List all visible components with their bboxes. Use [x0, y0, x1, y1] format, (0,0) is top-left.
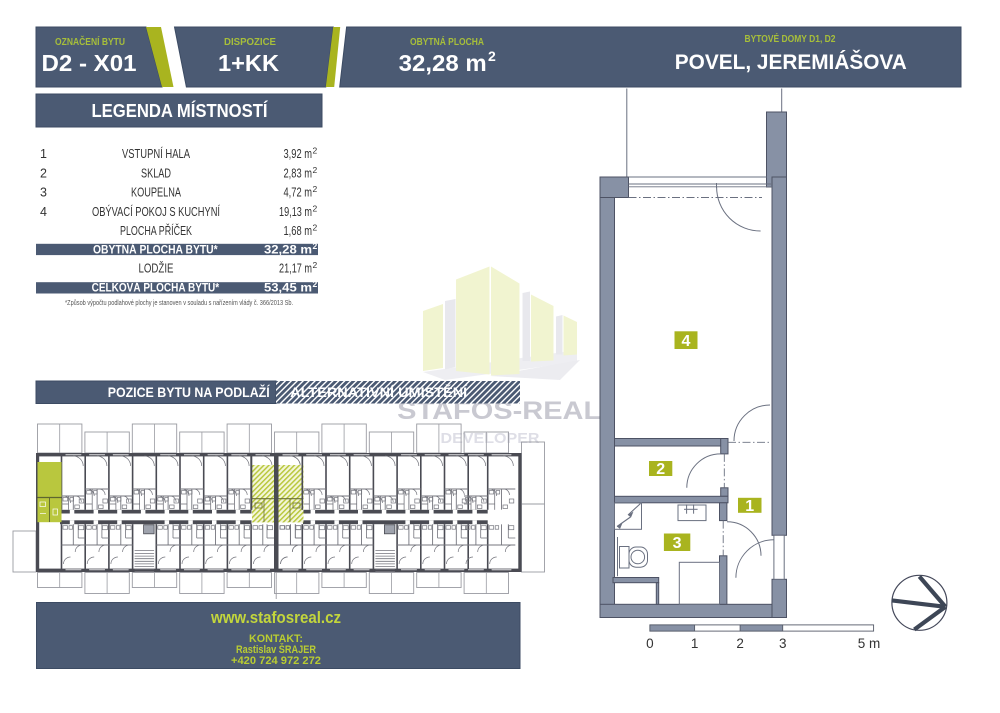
svg-text:*Způsob výpočtu podlahové ploc: *Způsob výpočtu podlahové plochy je stan… — [65, 298, 293, 307]
svg-text:+420 724 972 272: +420 724 972 272 — [231, 655, 321, 667]
svg-text:3: 3 — [779, 636, 787, 651]
svg-text:CELKOVÁ PLOCHA BYTU*: CELKOVÁ PLOCHA BYTU* — [92, 280, 220, 295]
svg-text:4: 4 — [682, 333, 691, 350]
svg-text:DEVELOPER: DEVELOPER — [441, 430, 540, 447]
svg-text:2: 2 — [488, 48, 496, 64]
svg-text:32,28 m: 32,28 m — [264, 242, 312, 256]
svg-text:OBYTNÁ PLOCHA: OBYTNÁ PLOCHA — [410, 35, 484, 48]
svg-text:3: 3 — [673, 535, 682, 552]
svg-text:4: 4 — [40, 205, 47, 219]
svg-text:1: 1 — [691, 636, 699, 651]
svg-text:1: 1 — [40, 147, 47, 161]
svg-text:POZICE BYTU NA PODLAŽÍ: POZICE BYTU NA PODLAŽÍ — [108, 383, 271, 400]
svg-text:ALTERNATIVNÍ UMÍSTĚNÍ: ALTERNATIVNÍ UMÍSTĚNÍ — [290, 383, 468, 400]
svg-text:3: 3 — [40, 186, 47, 200]
svg-text:2: 2 — [313, 146, 318, 156]
svg-text:2: 2 — [313, 223, 318, 233]
svg-text:19,13 m: 19,13 m — [279, 204, 312, 219]
svg-text:2: 2 — [313, 184, 318, 194]
svg-text:0: 0 — [646, 636, 654, 651]
svg-text:32,28 m: 32,28 m — [399, 50, 487, 76]
svg-text:5 m: 5 m — [858, 636, 881, 651]
svg-text:LODŽIE: LODŽIE — [139, 261, 174, 276]
svg-text:BYTOVÉ DOMY D1, D2: BYTOVÉ DOMY D1, D2 — [745, 32, 836, 45]
svg-text:1: 1 — [745, 498, 754, 515]
svg-text:www.stafosreal.cz: www.stafosreal.cz — [210, 609, 341, 627]
svg-text:1+KK: 1+KK — [218, 50, 279, 76]
svg-text:2,83 m: 2,83 m — [284, 165, 313, 180]
svg-text:OZNAČENÍ BYTU: OZNAČENÍ BYTU — [55, 35, 125, 48]
svg-text:POVEL, JEREMIÁŠOVA: POVEL, JEREMIÁŠOVA — [675, 50, 907, 74]
svg-text:1,68 m: 1,68 m — [284, 223, 313, 238]
svg-text:LEGENDA MÍSTNOSTÍ: LEGENDA MÍSTNOSTÍ — [92, 100, 269, 121]
svg-text:D2 - X01: D2 - X01 — [42, 50, 137, 76]
svg-text:4,72 m: 4,72 m — [284, 185, 313, 200]
svg-text:2: 2 — [313, 279, 318, 289]
svg-text:2: 2 — [656, 461, 665, 478]
svg-text:21,17 m: 21,17 m — [279, 261, 312, 276]
svg-text:2: 2 — [736, 636, 744, 651]
svg-text:2: 2 — [313, 260, 318, 270]
svg-text:OBÝVACÍ POKOJ S KUCHYNÍ: OBÝVACÍ POKOJ S KUCHYNÍ — [92, 204, 220, 219]
svg-text:2: 2 — [313, 203, 318, 213]
svg-text:2: 2 — [313, 165, 318, 175]
svg-text:DISPOZICE: DISPOZICE — [224, 37, 276, 48]
svg-text:SKLAD: SKLAD — [141, 165, 171, 180]
svg-text:VSTUPNÍ HALA: VSTUPNÍ HALA — [122, 146, 190, 161]
svg-text:53,45 m: 53,45 m — [264, 281, 312, 295]
svg-text:OBYTNÁ PLOCHA BYTU*: OBYTNÁ PLOCHA BYTU* — [93, 241, 218, 256]
svg-text:KOUPELNA: KOUPELNA — [131, 185, 181, 200]
svg-text:PLOCHA PŘÍČEK: PLOCHA PŘÍČEK — [120, 223, 192, 238]
svg-text:3,92 m: 3,92 m — [284, 146, 313, 161]
svg-text:2: 2 — [313, 241, 318, 251]
svg-text:2: 2 — [40, 166, 47, 180]
